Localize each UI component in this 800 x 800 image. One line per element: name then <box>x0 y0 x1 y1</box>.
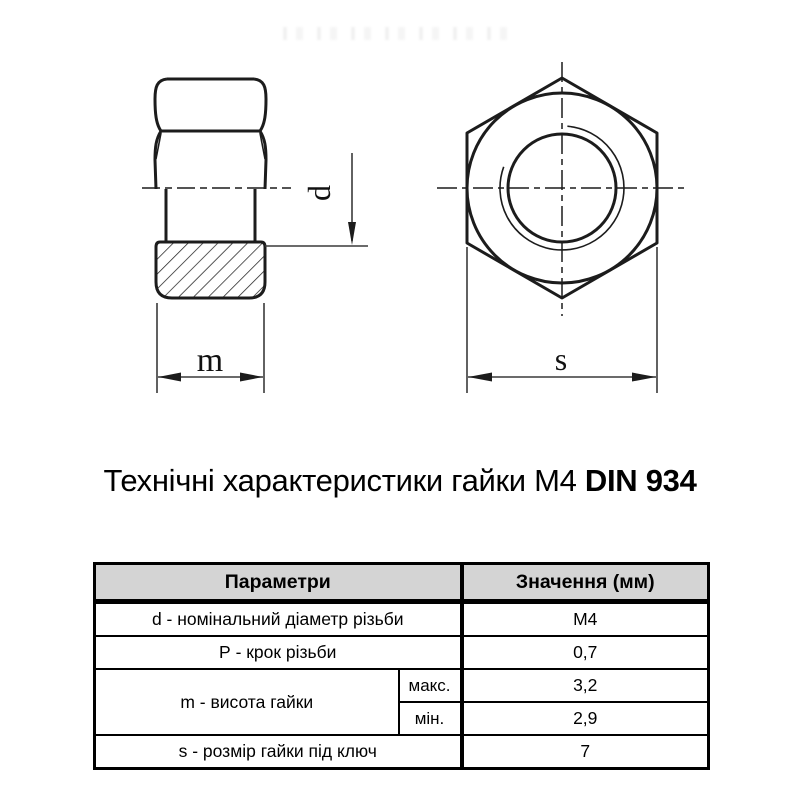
dimension-m: m <box>157 303 264 393</box>
param-m-min-value: 2,9 <box>462 702 709 735</box>
table-row-s: s - розмір гайки під ключ 7 <box>95 735 709 769</box>
page: { "title": { "regular": "Технічні характ… <box>0 0 800 800</box>
header-param: Параметри <box>95 564 462 602</box>
d-label: d <box>301 185 337 201</box>
m-arrowhead-left <box>158 373 181 382</box>
d-arrowhead <box>348 222 356 245</box>
m-label: m <box>197 342 223 379</box>
header-value: Значення (мм) <box>462 564 709 602</box>
spec-table: Параметри Значення (мм) d - номінальний … <box>93 562 710 770</box>
table-row-p: Р - крок різьби 0,7 <box>95 636 709 669</box>
technical-drawing: d m s <box>0 0 800 450</box>
param-s-label: s - розмір гайки під ключ <box>95 735 462 769</box>
s-label: s <box>555 341 567 377</box>
s-arrowhead-left <box>468 373 492 382</box>
param-m-max-label: макс. <box>399 669 462 702</box>
param-p-value: 0,7 <box>462 636 709 669</box>
nut-section-hatch-block <box>156 242 265 298</box>
table-row-d: d - номінальний діаметр різьби М4 <box>95 602 709 637</box>
page-title-bold: DIN 934 <box>585 463 697 498</box>
param-s-value: 7 <box>462 735 709 769</box>
param-m-min-label: мін. <box>399 702 462 735</box>
page-title-regular: Технічні характеристики гайки М4 <box>103 463 584 498</box>
nut-side-view <box>142 79 291 298</box>
m-arrowhead-right <box>240 373 263 382</box>
dimension-d: d <box>265 153 368 246</box>
param-m-label: m - висота гайки <box>95 669 399 735</box>
table-header-row: Параметри Значення (мм) <box>95 564 709 602</box>
param-p-label: Р - крок різьби <box>95 636 462 669</box>
page-title: Технічні характеристики гайки М4 DIN 934 <box>0 463 800 499</box>
param-m-max-value: 3,2 <box>462 669 709 702</box>
param-d-value: М4 <box>462 602 709 637</box>
param-d-label: d - номінальний діаметр різьби <box>95 602 462 637</box>
nut-front-view <box>437 62 686 316</box>
table-row-m-max: m - висота гайки макс. 3,2 <box>95 669 709 702</box>
nut-top-right-chamfer <box>254 79 266 131</box>
s-arrowhead-right <box>632 373 656 382</box>
nut-top-left-chamfer <box>155 79 167 131</box>
